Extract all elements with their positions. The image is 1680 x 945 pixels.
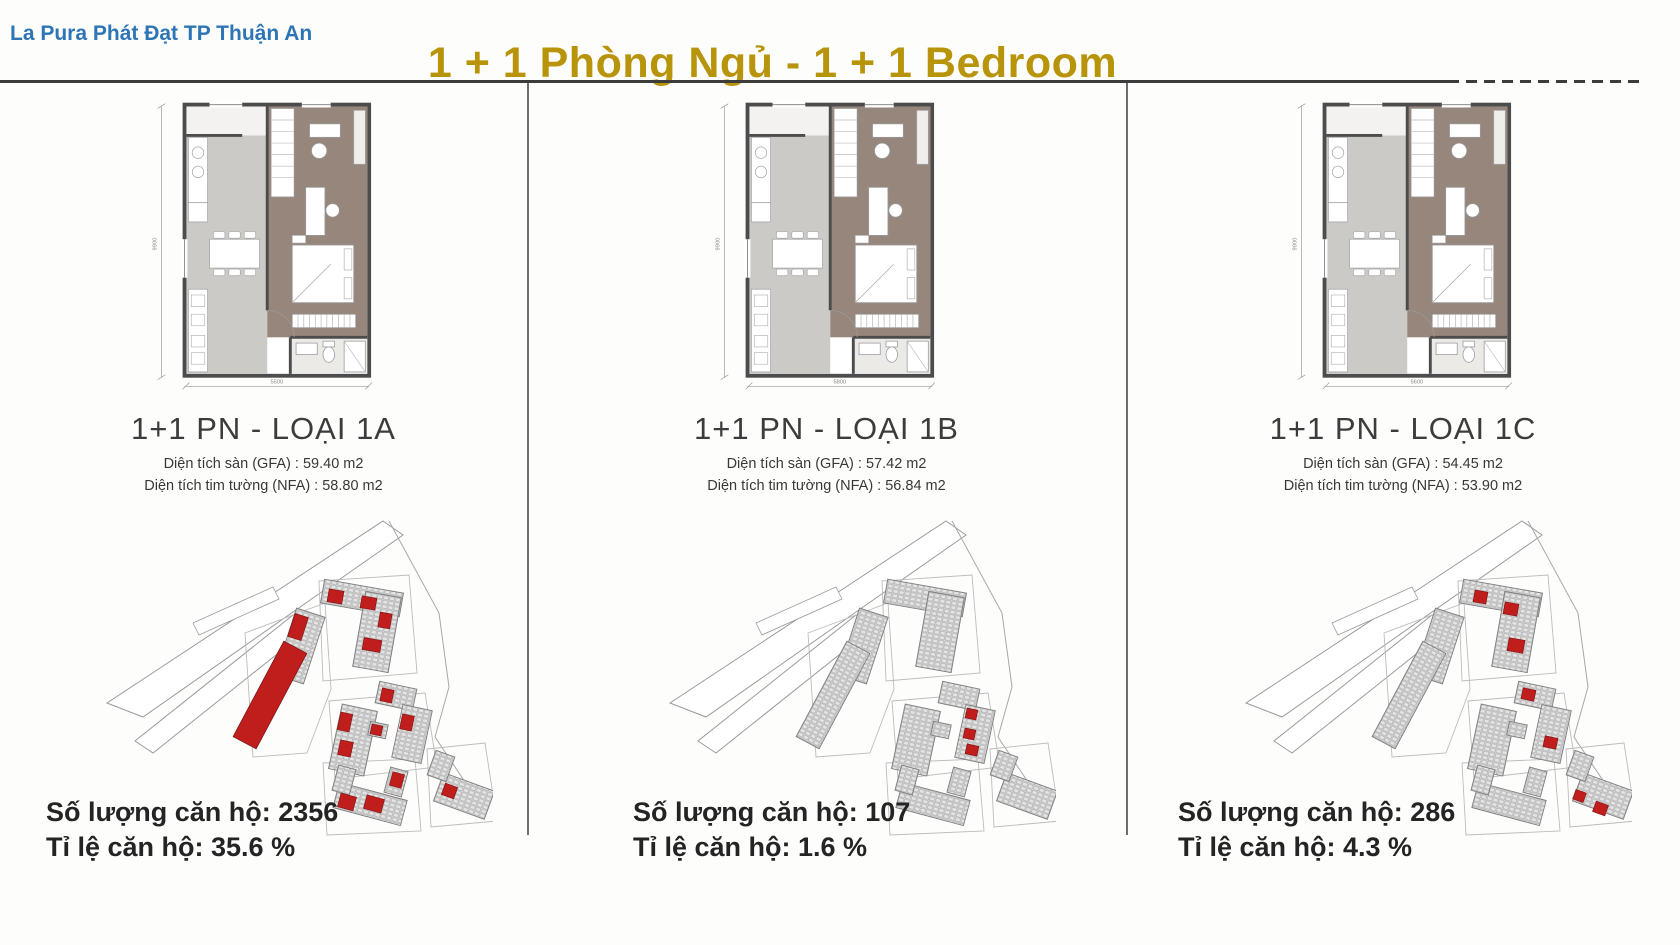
unit-type-title: 1+1 PN - LOẠI 1B bbox=[527, 411, 1126, 447]
unit-ratio-text: Tỉ lệ căn hộ: 4.3 % bbox=[1178, 830, 1455, 865]
unit-type-title: 1+1 PN - LOẠI 1C bbox=[1126, 411, 1680, 447]
gfa-text: Diện tích sàn (GFA) : 59.40 m2 bbox=[0, 453, 527, 475]
unit-column-1a: 9900 5500 bbox=[0, 83, 527, 945]
siteplan-1a bbox=[35, 491, 493, 839]
svg-text:9900: 9900 bbox=[153, 238, 159, 251]
unit-column-1c: 9900 5600 bbox=[1126, 83, 1680, 945]
siteplan-1b bbox=[598, 491, 1056, 839]
svg-text:5500: 5500 bbox=[271, 379, 284, 385]
column-divider bbox=[527, 83, 529, 835]
svg-text:9900: 9900 bbox=[716, 238, 722, 251]
unit-stats: Số lượng căn hộ: 107 Tỉ lệ căn hộ: 1.6 % bbox=[633, 795, 910, 864]
unit-count-text: Số lượng căn hộ: 107 bbox=[633, 795, 910, 830]
floorplan-1a: 9900 5500 bbox=[0, 95, 527, 395]
svg-text:5800: 5800 bbox=[834, 379, 847, 385]
svg-text:5600: 5600 bbox=[1410, 379, 1423, 385]
floorplan-1c: 9900 5600 bbox=[1126, 95, 1680, 395]
unit-stats: Số lượng căn hộ: 286 Tỉ lệ căn hộ: 4.3 % bbox=[1178, 795, 1455, 864]
gfa-text: Diện tích sàn (GFA) : 54.45 m2 bbox=[1126, 453, 1680, 475]
column-divider bbox=[1126, 83, 1128, 835]
brochure-page: La Pura Phát Đạt TP Thuận An 1 + 1 Phòng… bbox=[0, 0, 1680, 945]
unit-count-text: Số lượng căn hộ: 286 bbox=[1178, 795, 1455, 830]
unit-ratio-text: Tỉ lệ căn hộ: 1.6 % bbox=[633, 830, 910, 865]
siteplan-1c bbox=[1174, 491, 1632, 839]
unit-stats: Số lượng căn hộ: 2356 Tỉ lệ căn hộ: 35.6… bbox=[46, 795, 338, 864]
unit-column-1b: 9900 5800 bbox=[527, 83, 1126, 945]
unit-type-columns: 9900 5500 bbox=[0, 83, 1680, 945]
unit-count-text: Số lượng căn hộ: 2356 bbox=[46, 795, 338, 830]
unit-ratio-text: Tỉ lệ căn hộ: 35.6 % bbox=[46, 830, 338, 865]
svg-text:9900: 9900 bbox=[1292, 238, 1298, 251]
floorplan-1b: 9900 5800 bbox=[527, 95, 1126, 395]
gfa-text: Diện tích sàn (GFA) : 57.42 m2 bbox=[527, 453, 1126, 475]
unit-type-title: 1+1 PN - LOẠI 1A bbox=[0, 411, 527, 447]
